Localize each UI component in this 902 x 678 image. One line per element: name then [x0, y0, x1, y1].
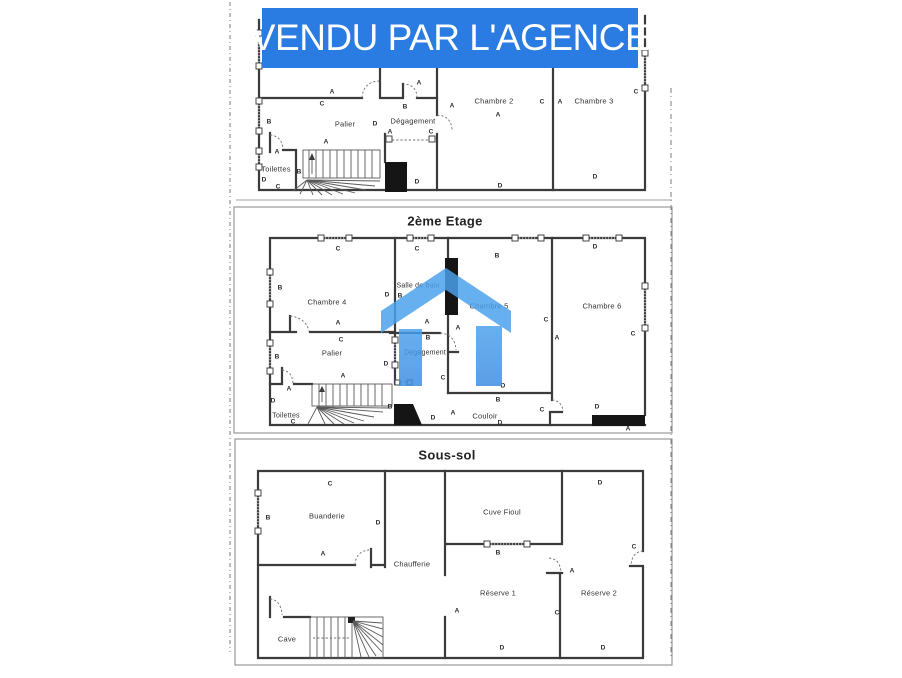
vendu-banner: VENDU PAR L'AGENCE [262, 8, 638, 68]
listing-floorplan-page: Palier Dégagement Chambre 2 Chambre 3 To… [0, 0, 902, 678]
agency-house-logo-icon [0, 0, 902, 678]
vendu-banner-label: VENDU PAR L'AGENCE [251, 17, 649, 59]
